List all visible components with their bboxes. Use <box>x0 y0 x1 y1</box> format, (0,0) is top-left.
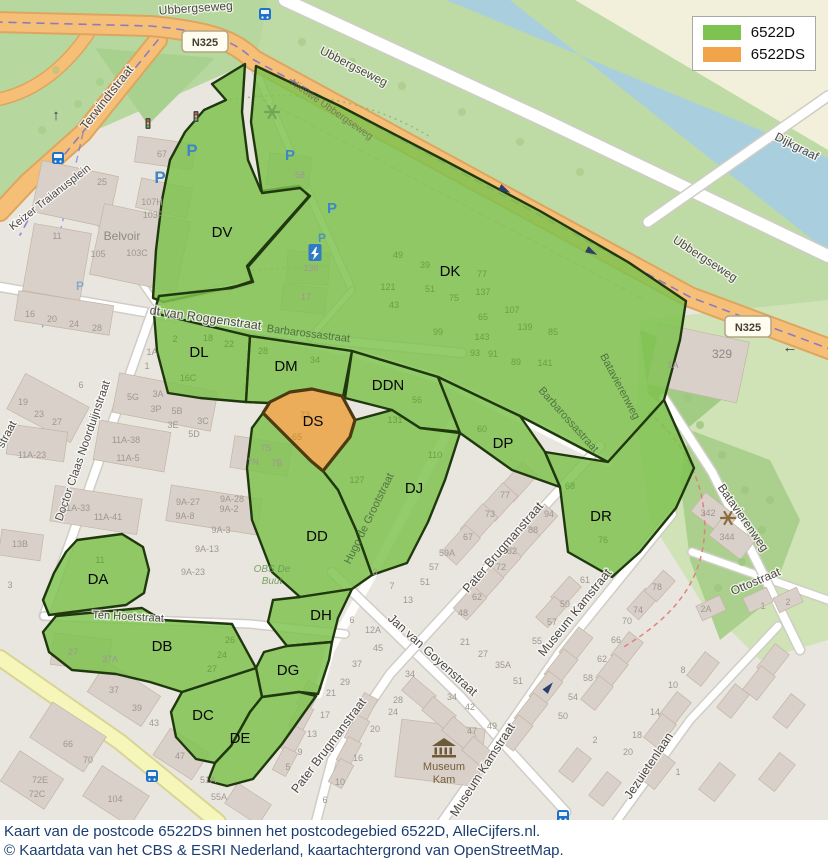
house-number: 3P <box>150 404 161 414</box>
house-number: 3C <box>197 416 209 426</box>
tree-icon <box>96 78 104 86</box>
traffic-light-icon <box>194 111 199 122</box>
house-number: 55 <box>532 636 542 646</box>
house-number-green: 89 <box>511 357 521 367</box>
house-number: 18 <box>632 730 642 740</box>
house-number: 61 <box>580 575 590 585</box>
school-label: OBS De <box>254 564 291 575</box>
house-number: 59 <box>560 599 570 609</box>
house-number: 11A-41 <box>94 512 122 522</box>
house-number: 107H <box>141 197 163 207</box>
house-number: 27 <box>52 417 62 427</box>
house-number: 23 <box>34 409 44 419</box>
house-number: 21 <box>326 688 336 698</box>
house-number: 342 <box>700 508 715 518</box>
parking-icon: P <box>76 279 84 293</box>
road-badge-n325: N325 <box>725 316 771 337</box>
house-number-green: 137 <box>475 287 490 297</box>
region-label-DK: DK <box>440 263 461 280</box>
house-number: 103F <box>143 210 164 220</box>
bus-stop-icon <box>259 8 271 20</box>
house-number: 47 <box>175 751 185 761</box>
house-number-green: 68 <box>565 481 575 491</box>
house-number-green: 22 <box>224 339 234 349</box>
house-number-green: 85 <box>548 327 558 337</box>
house-number-green: 16C <box>180 373 197 383</box>
house-number: 50 <box>558 711 568 721</box>
caption: Kaart van de postcode 6522DS binnen het … <box>0 820 828 861</box>
legend-item-6522ds: 6522DS <box>703 47 805 62</box>
house-number: 51A <box>200 775 216 785</box>
house-number: 9A-3 <box>211 525 230 535</box>
house-number-green: 65 <box>478 312 488 322</box>
tree-icon <box>38 126 46 134</box>
house-number-green: 143 <box>474 332 489 342</box>
house-number: 78 <box>652 582 662 592</box>
map-legend: 6522D 6522DS <box>692 16 816 71</box>
house-number: 21 <box>460 637 470 647</box>
house-number: 9A-23 <box>181 567 205 577</box>
house-number: 1 <box>760 601 765 611</box>
house-number-green: 24 <box>217 650 227 660</box>
house-number-green: 91 <box>488 349 498 359</box>
house-number: 77 <box>500 490 510 500</box>
house-number: 82 <box>507 546 517 556</box>
tree-icon <box>458 108 466 116</box>
region-label-DH: DH <box>310 607 332 624</box>
house-number: 34 <box>405 669 415 679</box>
house-number: 45 <box>373 643 383 653</box>
house-number: 17 <box>301 292 311 302</box>
region-label-DM: DM <box>274 358 297 375</box>
tree-icon <box>516 138 524 146</box>
house-number-green: 110 <box>428 450 442 460</box>
house-number: 11A-5 <box>116 453 139 463</box>
legend-swatch-6522d <box>703 25 741 40</box>
museum-label: Museum <box>423 761 465 773</box>
charging-station-icon <box>309 244 322 261</box>
tree-icon <box>741 486 749 494</box>
house-number: 39 <box>132 703 142 713</box>
house-number: 88 <box>528 525 538 535</box>
house-number: 58 <box>295 170 305 180</box>
house-number-green: 75 <box>449 293 459 303</box>
house-number-green: 107 <box>504 305 519 315</box>
traffic-light-icon <box>146 118 151 129</box>
house-number: 10 <box>668 680 678 690</box>
house-number-green: 139 <box>517 322 532 332</box>
house-number: 72C <box>29 789 46 799</box>
tree-icon <box>714 584 722 592</box>
house-number: 16 <box>25 309 35 319</box>
house-number: 2A <box>700 604 711 614</box>
house-number: 37 <box>109 685 119 695</box>
tree-icon <box>298 38 306 46</box>
house-number: 9A-2 <box>219 504 238 514</box>
house-number: 72E <box>32 775 48 785</box>
region-label-DC: DC <box>192 707 214 724</box>
house-number: 73 <box>485 509 495 519</box>
postcode-map-page: UbbergsewegUbbergsewegUbbergsewegDijkgra… <box>0 0 828 861</box>
house-number: 6 <box>78 380 83 390</box>
house-number-green: 93 <box>470 348 480 358</box>
house-number: 8 <box>680 665 685 675</box>
house-number: 74 <box>633 605 643 615</box>
house-number: 17 <box>320 710 330 720</box>
house-number: 11A-38 <box>112 435 140 445</box>
house-number: 29 <box>340 677 350 687</box>
house-number: 10 <box>335 777 345 787</box>
house-number: 5B <box>171 406 182 416</box>
house-number: 57 <box>429 562 439 572</box>
caption-line-1: Kaart van de postcode 6522DS binnen het … <box>4 822 828 841</box>
house-number: 11A-33 <box>62 503 90 513</box>
parking-icon: P <box>154 168 165 187</box>
tree-icon <box>576 168 584 176</box>
region-label-DV: DV <box>212 224 233 241</box>
house-number: 7 <box>389 581 394 591</box>
house-number: 12A <box>365 625 381 635</box>
house-number: 6 <box>322 795 327 805</box>
house-number: 5 <box>285 762 290 772</box>
house-number: 24 <box>69 319 79 329</box>
svg-text:N325: N325 <box>735 322 761 334</box>
parking-icon: P <box>327 200 337 217</box>
house-number: 9A-8 <box>175 511 194 521</box>
house-number: 58 <box>583 673 593 683</box>
house-number-green: 121 <box>380 282 395 292</box>
house-number: 66 <box>63 739 73 749</box>
house-number: 136 <box>303 263 318 273</box>
house-number-green: 39 <box>420 260 430 270</box>
house-number: 7S <box>260 443 271 453</box>
house-number-green: 27 <box>207 664 217 674</box>
house-number: 49 <box>487 721 497 731</box>
region-label-DJ: DJ <box>405 480 423 497</box>
region-label-DP: DP <box>493 435 514 452</box>
house-number: 11 <box>52 231 61 241</box>
house-number: 51 <box>420 577 430 587</box>
house-number-green: 141 <box>537 358 552 368</box>
house-number-green: 77 <box>477 269 487 279</box>
house-number: 2 <box>592 735 597 745</box>
house-number: 62 <box>472 592 482 602</box>
house-number-green: 11 <box>95 555 104 565</box>
house-number-green: 28 <box>258 346 268 356</box>
house-number-green: 49 <box>393 250 403 260</box>
tree-icon <box>398 82 406 90</box>
region-label-DG: DG <box>277 662 300 679</box>
house-number: 3 <box>372 567 377 577</box>
house-number: 105 <box>90 249 105 259</box>
tree-icon <box>74 100 82 108</box>
house-number: 47 <box>467 726 477 736</box>
region-label-DD: DD <box>306 528 328 545</box>
house-number-green: 18 <box>203 333 213 343</box>
belvoir-label: Belvoir <box>104 229 141 243</box>
house-number: 42 <box>465 702 475 712</box>
house-number-green: 2 <box>172 334 177 344</box>
parking-icon: P <box>318 231 326 245</box>
region-label-DR: DR <box>590 508 612 525</box>
house-number-green: 43 <box>389 300 399 310</box>
house-number: 67 <box>157 149 167 159</box>
house-number-green: 76 <box>598 535 608 545</box>
house-number-green: 26 <box>225 635 235 645</box>
house-number: 3A <box>152 389 163 399</box>
house-number: 13 <box>307 729 317 739</box>
house-number: 9A-28 <box>220 494 244 504</box>
legend-label-6522ds: 6522DS <box>751 47 805 62</box>
house-number: 13B <box>12 539 28 549</box>
house-number: 34 <box>447 692 457 702</box>
house-number: 1A <box>146 347 157 357</box>
house-number: 20 <box>370 724 380 734</box>
house-number: 5D <box>188 429 200 439</box>
house-number: 43 <box>149 718 159 728</box>
house-number: 7N <box>247 457 259 467</box>
house-number: 37 <box>352 659 362 669</box>
map-canvas: UbbergsewegUbbergsewegUbbergsewegDijkgra… <box>0 0 828 822</box>
house-number: 1 <box>675 767 680 777</box>
legend-swatch-6522ds <box>703 47 741 62</box>
house-number: 28 <box>92 323 102 333</box>
house-number: 55A <box>211 792 227 802</box>
oneway-arrow-icon: ↑ <box>52 107 60 124</box>
house-number: 28 <box>393 695 403 705</box>
house-number: 9 <box>297 747 302 757</box>
bus-stop-icon <box>52 152 64 164</box>
caption-line-2: © Kaartdata van het CBS & ESRI Nederland… <box>4 841 828 860</box>
house-number: 94 <box>544 509 554 519</box>
house-number-green: 34 <box>310 355 320 365</box>
house-number: 103C <box>126 248 148 258</box>
house-number: 16 <box>353 753 363 763</box>
region-label-DL: DL <box>189 344 208 361</box>
tree-icon <box>696 421 704 429</box>
house-number: 25 <box>97 177 107 187</box>
house-number-green: 51 <box>425 284 435 294</box>
region-label-DS: DS <box>303 413 324 430</box>
house-number: 1A <box>667 360 678 370</box>
house-number: 13 <box>403 595 413 605</box>
house-number: 59A <box>439 548 455 558</box>
house-number: 104 <box>107 794 122 804</box>
house-number-green: 56 <box>412 395 422 405</box>
house-number: 3 <box>7 580 12 590</box>
region-label-DN: DDN <box>372 377 405 394</box>
house-number: 6 <box>349 615 354 625</box>
house-number: 9A-27 <box>176 497 200 507</box>
house-number: 1 <box>144 361 149 371</box>
house-number: 67 <box>463 532 473 542</box>
house-number: 329 <box>712 347 732 361</box>
house-number: 20 <box>623 747 633 757</box>
house-number: 57 <box>547 617 557 627</box>
svg-text:N325: N325 <box>192 37 218 49</box>
house-number: 27 <box>478 649 488 659</box>
bus-stop-icon <box>146 770 158 782</box>
house-number: 7B <box>271 458 282 468</box>
region-label-DE: DE <box>230 730 251 747</box>
tree-icon <box>718 451 726 459</box>
road-badge-n325: N325 <box>182 31 228 52</box>
school-label: Buut <box>262 576 284 587</box>
house-number: 27 <box>68 647 78 657</box>
house-number: 344 <box>719 532 734 542</box>
house-number: 62 <box>597 654 607 664</box>
house-number: 2 <box>785 597 790 607</box>
house-number-green: 127 <box>349 475 364 485</box>
tree-icon <box>684 394 692 402</box>
house-number-green: 99 <box>433 327 443 337</box>
house-number: 48 <box>458 608 468 618</box>
tree-icon <box>766 496 774 504</box>
parking-icon: P <box>285 147 295 164</box>
house-number: 11A-23 <box>18 450 46 460</box>
house-number: 9A-13 <box>195 544 219 554</box>
house-number: 70 <box>83 755 93 765</box>
tree-icon <box>738 558 746 566</box>
house-number: 19 <box>18 397 28 407</box>
house-number: 72 <box>496 562 506 572</box>
legend-label-6522d: 6522D <box>751 25 795 40</box>
house-number: 5G <box>127 392 139 402</box>
house-number: 70 <box>622 616 632 626</box>
house-number: 54 <box>568 692 578 702</box>
parking-icon: P <box>186 141 197 160</box>
house-number-ds: 65 <box>292 432 302 442</box>
oneway-arrow-icon: ← <box>783 339 798 356</box>
region-label-DA: DA <box>88 571 109 588</box>
region-label-DB: DB <box>152 638 173 655</box>
house-number: 24 <box>388 707 398 717</box>
legend-item-6522d: 6522D <box>703 25 805 40</box>
house-number-green: 60 <box>477 424 487 434</box>
house-number-green: 131 <box>387 415 402 425</box>
house-number: 51 <box>513 676 523 686</box>
house-number: 14 <box>650 707 660 717</box>
house-number: 35A <box>495 660 511 670</box>
house-number: 20 <box>47 314 57 324</box>
museum-label: Kam <box>433 774 456 786</box>
tree-icon <box>52 66 60 74</box>
house-number: 3E <box>167 420 178 430</box>
house-number: 37A <box>102 654 118 664</box>
house-number: 66 <box>611 635 621 645</box>
